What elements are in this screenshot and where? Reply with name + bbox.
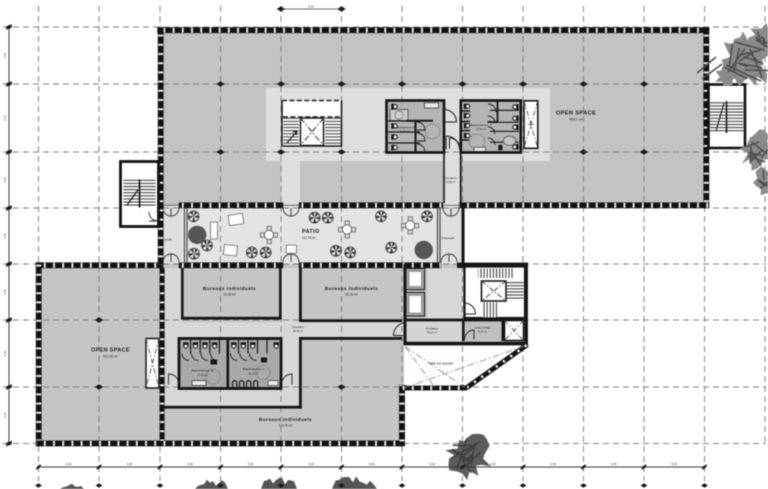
svg-text:32,79 m²: 32,79 m²	[476, 127, 486, 131]
svg-text:5,43: 5,43	[309, 462, 315, 466]
svg-text:5,40: 5,40	[3, 289, 7, 295]
svg-text:6,10: 6,10	[3, 350, 7, 356]
svg-text:Sanitaires h: Sanitaires h	[191, 369, 213, 373]
svg-text:5,40: 5,40	[127, 462, 133, 466]
svg-text:PATIO: PATIO	[302, 229, 320, 235]
svg-text:5,43: 5,43	[3, 412, 7, 418]
svg-text:5,40: 5,40	[430, 462, 436, 466]
svg-text:5,40: 5,40	[369, 462, 375, 466]
svg-text:5,43: 5,43	[308, 4, 314, 8]
svg-text:Sanitaires f: Sanitaires f	[243, 367, 265, 371]
svg-text:Vide sur accueil: Vide sur accueil	[429, 362, 453, 366]
svg-text:24,27 m²: 24,27 m²	[427, 331, 437, 335]
svg-text:17,03 m²: 17,03 m²	[197, 373, 208, 377]
svg-text:6,10: 6,10	[3, 115, 7, 121]
svg-text:5,40: 5,40	[3, 233, 7, 239]
svg-text:Sanitaires f: Sanitaires f	[471, 123, 492, 127]
svg-text:Bureaux individuels: Bureaux individuels	[325, 286, 378, 292]
svg-text:21,46 m²: 21,46 m²	[399, 130, 409, 134]
svg-text:Circulation: Circulation	[426, 327, 439, 331]
svg-text:5,40: 5,40	[66, 462, 72, 466]
svg-text:5,43: 5,43	[490, 462, 496, 466]
svg-text:161,90 m²: 161,90 m²	[103, 355, 119, 359]
svg-text:13,86 m²: 13,86 m²	[445, 180, 455, 184]
svg-text:Circulation: Circulation	[292, 325, 305, 329]
svg-text:Local ménage: Local ménage	[475, 327, 491, 330]
svg-text:119,76 m²: 119,76 m²	[278, 424, 292, 428]
svg-text:OPEN SPACE: OPEN SPACE	[556, 111, 596, 117]
svg-text:52,10 m²: 52,10 m²	[345, 293, 358, 297]
svg-text:111,78 m²: 111,78 m²	[302, 236, 316, 240]
svg-text:Bureaux individuels: Bureaux individuels	[259, 417, 312, 423]
svg-text:OPEN SPACE: OPEN SPACE	[91, 348, 130, 354]
svg-text:5,40: 5,40	[672, 462, 678, 466]
svg-text:80,73 m²: 80,73 m²	[293, 329, 303, 333]
svg-text:5,43: 5,43	[611, 462, 617, 466]
svg-text:Passerelle: Passerelle	[159, 238, 173, 242]
svg-text:5,43: 5,43	[248, 462, 254, 466]
svg-text:5,40: 5,40	[3, 52, 7, 58]
svg-text:5,40: 5,40	[551, 462, 557, 466]
svg-text:5,40: 5,40	[188, 462, 194, 466]
svg-text:5,43: 5,43	[3, 177, 7, 183]
svg-text:Bureaux individuels: Bureaux individuels	[203, 286, 256, 292]
svg-text:660,1 m²: 660,1 m²	[569, 118, 583, 122]
svg-text:Sanitaires h: Sanitaires h	[393, 126, 415, 130]
svg-text:21,08 m²: 21,08 m²	[223, 293, 236, 297]
svg-text:6,17 m²: 6,17 m²	[478, 331, 487, 334]
svg-text:16,10 m²: 16,10 m²	[248, 372, 259, 376]
svg-text:Circulation: Circulation	[444, 176, 457, 180]
svg-text:Passerelle: Passerelle	[442, 236, 456, 240]
